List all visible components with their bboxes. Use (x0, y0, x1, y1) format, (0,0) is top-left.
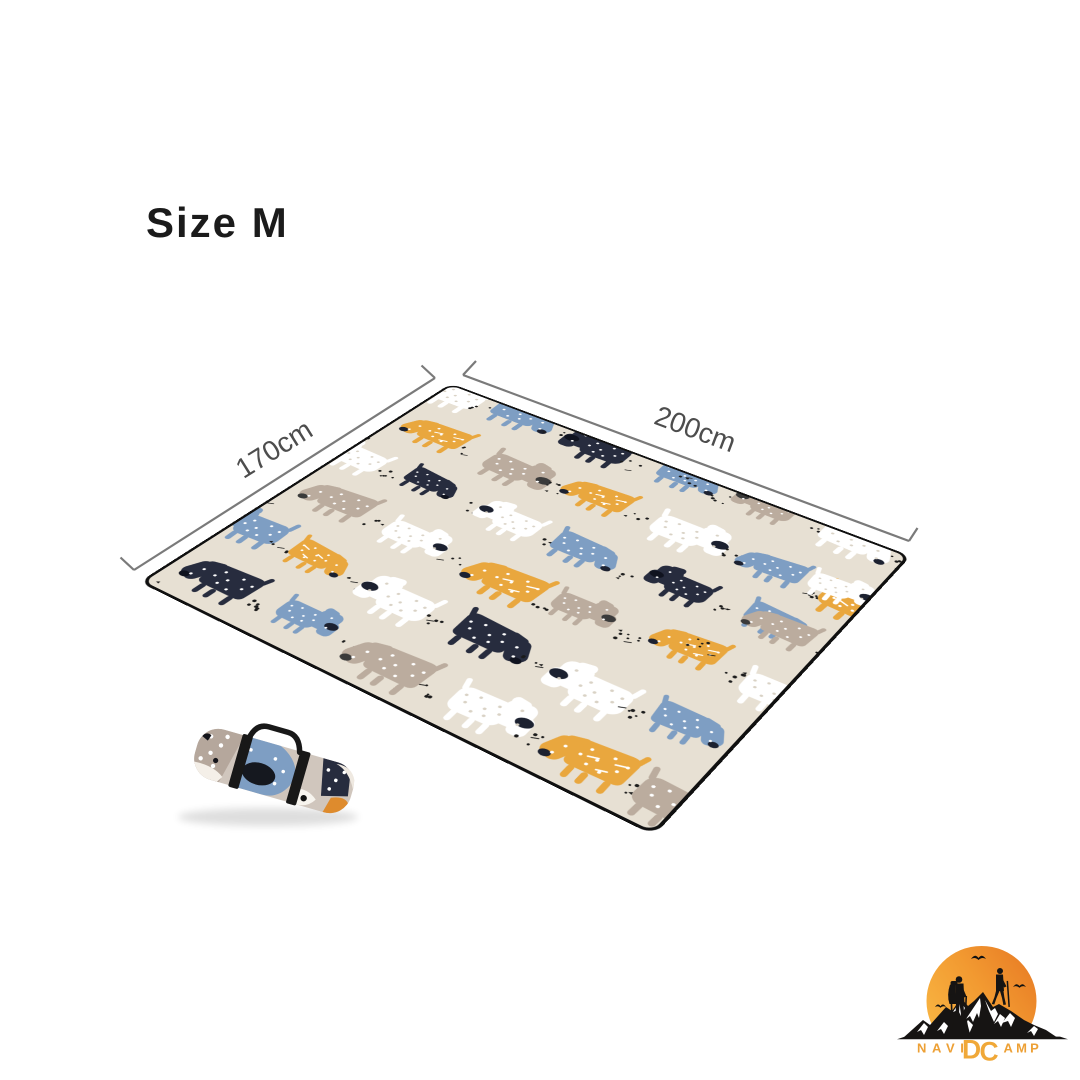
svg-text:C: C (980, 1037, 999, 1067)
svg-text:AMP: AMP (1004, 1041, 1043, 1056)
svg-text:D: D (962, 1035, 981, 1065)
